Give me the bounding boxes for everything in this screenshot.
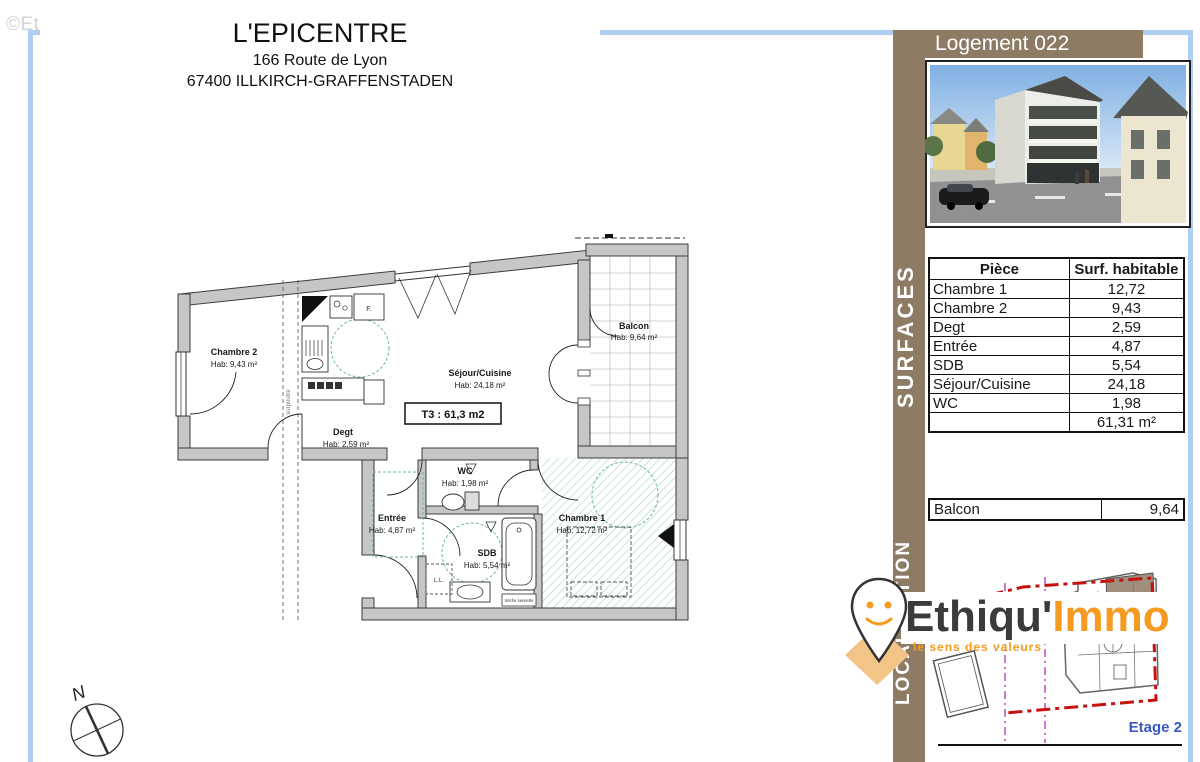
logement-header: Logement 022 bbox=[893, 30, 1143, 58]
etage-label: Etage 2 bbox=[1090, 719, 1182, 736]
kitchen: F. bbox=[302, 294, 384, 404]
t3-label-box: T3 : 61,3 m2 bbox=[405, 403, 501, 424]
brand-name-orange: Immo bbox=[1052, 592, 1169, 641]
balcony-tiles bbox=[590, 257, 676, 446]
svg-text:Entrée: Entrée bbox=[378, 513, 406, 523]
building-photo bbox=[925, 60, 1191, 228]
balcon-label: Balcon bbox=[929, 499, 1101, 520]
table-row: Chambre 1 12,72 bbox=[929, 280, 1184, 299]
svg-text:Hab: 9,64 m²: Hab: 9,64 m² bbox=[611, 333, 658, 342]
floor-plan: surpoutre F. bbox=[150, 230, 900, 640]
svg-text:Chambre 1: Chambre 1 bbox=[559, 513, 606, 523]
surfaces-table: Pièce Surf. habitable Chambre 1 12,72 Ch… bbox=[928, 257, 1185, 433]
flyer-page: ©EtreProprio.com L'EPICENTRE 166 Route d… bbox=[0, 0, 1200, 762]
svg-text:Degt: Degt bbox=[333, 427, 353, 437]
svg-text:Hab: 12,72 m²: Hab: 12,72 m² bbox=[557, 526, 608, 535]
residence-name: L'EPICENTRE bbox=[40, 18, 600, 49]
svg-text:Hab: 5,54 m²: Hab: 5,54 m² bbox=[464, 561, 511, 570]
svg-text:Hab: 4,87 m²: Hab: 4,87 m² bbox=[369, 526, 416, 535]
logement-title: Logement 022 bbox=[935, 32, 1069, 56]
balcon-row: Balcon 9,64 bbox=[929, 499, 1184, 520]
brand-name-dark: Ethiqu' bbox=[905, 592, 1052, 641]
surpoutre-beam: surpoutre bbox=[283, 280, 298, 622]
frame-left-line bbox=[28, 30, 33, 762]
svg-text:Hab: 1,98 m²: Hab: 1,98 m² bbox=[442, 479, 489, 488]
address-line-2: 67400 ILLKIRCH-GRAFFENSTADEN bbox=[40, 73, 600, 91]
table-total-row: 61,31 m² bbox=[929, 413, 1184, 433]
svg-text:SDB: SDB bbox=[477, 548, 497, 558]
svg-text:Sèche serviette: Sèche serviette bbox=[505, 598, 535, 603]
svg-text:F.: F. bbox=[366, 306, 372, 313]
balcon-value: 9,64 bbox=[1101, 499, 1184, 520]
north-label: N bbox=[69, 681, 89, 705]
brand-name: Ethiqu'Immo bbox=[901, 592, 1176, 644]
brand-logo-pin bbox=[843, 575, 915, 687]
col-surface: Surf. habitable bbox=[1069, 258, 1184, 280]
balcon-table: Balcon 9,64 bbox=[928, 498, 1185, 521]
svg-text:Chambre 2: Chambre 2 bbox=[211, 347, 258, 357]
table-row: WC 1,98 bbox=[929, 394, 1184, 413]
svg-text:Balcon: Balcon bbox=[619, 321, 649, 331]
address-line-1: 166 Route de Lyon bbox=[40, 52, 600, 70]
col-piece: Pièce bbox=[929, 258, 1069, 280]
table-row: Séjour/Cuisine 24,18 bbox=[929, 375, 1184, 394]
table-header-row: Pièce Surf. habitable bbox=[929, 258, 1184, 280]
svg-text:L.L.: L.L. bbox=[434, 578, 444, 584]
brand-tagline: le sens des valeurs bbox=[913, 640, 1042, 654]
photo-scene bbox=[925, 65, 1188, 223]
pedestrian bbox=[1075, 172, 1079, 184]
title-block: L'EPICENTRE 166 Route de Lyon 67400 ILLK… bbox=[40, 10, 600, 100]
svg-text:surpoutre: surpoutre bbox=[286, 389, 292, 415]
table-row: Chambre 2 9,43 bbox=[929, 299, 1184, 318]
svg-text:Hab: 9,43 m²: Hab: 9,43 m² bbox=[211, 360, 258, 369]
bottom-rule bbox=[938, 744, 1182, 746]
table-row: Entrée 4,87 bbox=[929, 337, 1184, 356]
table-row: Degt 2,59 bbox=[929, 318, 1184, 337]
total-surface: 61,31 m² bbox=[1069, 413, 1184, 433]
north-compass: N bbox=[55, 672, 145, 762]
svg-text:WC: WC bbox=[458, 466, 473, 476]
svg-text:Hab: 24,18 m²: Hab: 24,18 m² bbox=[455, 381, 506, 390]
svg-text:Hab: 2,59 m²: Hab: 2,59 m² bbox=[323, 440, 370, 449]
svg-text:T3 : 61,3 m2: T3 : 61,3 m2 bbox=[422, 409, 485, 421]
table-row: SDB 5,54 bbox=[929, 356, 1184, 375]
svg-text:Séjour/Cuisine: Séjour/Cuisine bbox=[448, 368, 511, 378]
neighbor-building-outline bbox=[933, 651, 988, 717]
